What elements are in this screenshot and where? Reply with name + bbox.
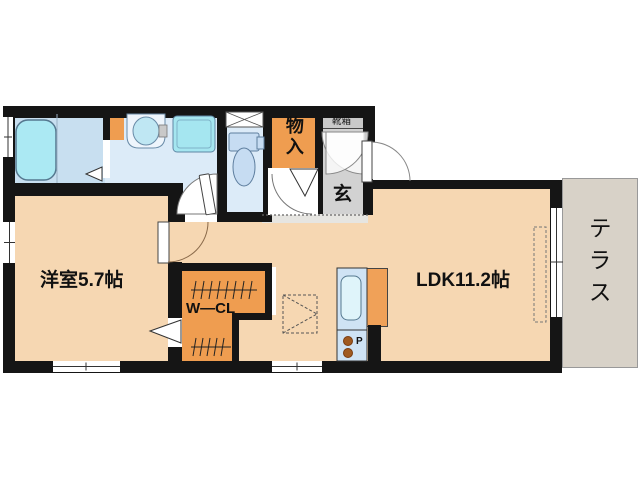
stove-burner [344, 349, 353, 358]
storage-label: 物入 [284, 116, 303, 158]
front-door-swing [371, 142, 410, 181]
western-room-label: 洋室5.7帖 [40, 271, 123, 291]
terrace-label: テラス [586, 216, 610, 312]
ldk-label: LDK11.2帖 [416, 271, 510, 291]
floorplan-linework [0, 0, 640, 480]
shoe-cabinet-label: 靴箱 [332, 117, 351, 127]
toilet-bowl [233, 148, 255, 186]
wcl-folding-door-icon [150, 320, 181, 343]
western-room-door-swing [168, 222, 208, 262]
wcl-hanger-pipes [191, 281, 257, 356]
bathtub [16, 120, 56, 180]
bath-folding-door-icon [86, 167, 102, 181]
front-door-leaf [362, 141, 372, 182]
wcl-label: W―CL [186, 301, 235, 317]
refrigerator-space [283, 295, 317, 333]
terrace-door-dashed-guide [534, 227, 546, 322]
kitchen-sink [341, 276, 361, 320]
storage-door-fold [290, 169, 318, 196]
washing-machine-pan [173, 116, 215, 152]
floor-plan: 洋室5.7帖 LDK11.2帖 W―CL 物入 玄 靴箱 テラス P [0, 0, 640, 480]
stove-type-label: P [356, 337, 363, 348]
entrance-label: 玄 [333, 185, 352, 205]
stove-burner [344, 337, 353, 346]
western-room-door-leaf [158, 222, 169, 263]
